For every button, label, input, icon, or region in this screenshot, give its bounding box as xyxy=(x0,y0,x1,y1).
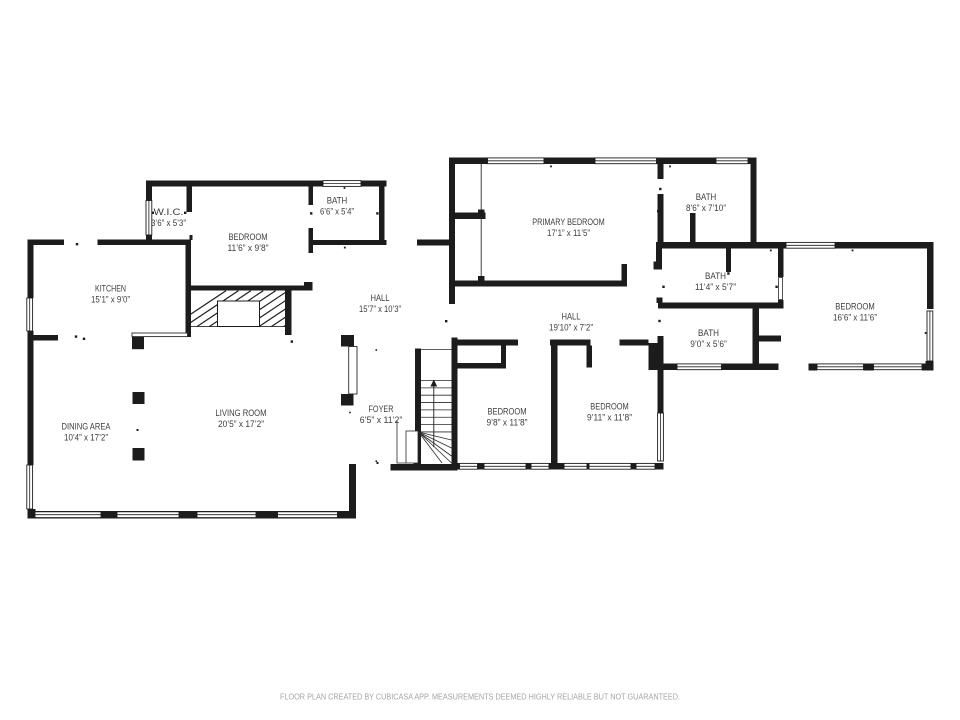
svg-text:BATH: BATH xyxy=(698,328,719,339)
svg-text:16’6” x 11’6”: 16’6” x 11’6” xyxy=(833,313,877,324)
svg-text:BEDROOM: BEDROOM xyxy=(488,407,527,418)
svg-text:6’5” x 11’2”: 6’5” x 11’2” xyxy=(360,415,403,426)
svg-text:15’7” x 10’3”: 15’7” x 10’3” xyxy=(359,304,401,315)
svg-text:LIVING ROOM: LIVING ROOM xyxy=(216,408,267,419)
svg-text:15’1” x 9’0”: 15’1” x 9’0” xyxy=(91,295,130,306)
svg-text:BEDROOM: BEDROOM xyxy=(229,232,268,243)
svg-text:10’4” x 17’2”: 10’4” x 17’2” xyxy=(64,433,108,444)
svg-text:KITCHEN: KITCHEN xyxy=(95,284,126,295)
svg-text:17’1” x 11’5”: 17’1” x 11’5” xyxy=(547,228,590,239)
svg-text:PRIMARY BEDROOM: PRIMARY BEDROOM xyxy=(532,217,605,228)
svg-text:19’10” x 7’2”: 19’10” x 7’2” xyxy=(549,323,593,334)
svg-text:11’4” x 5’7”: 11’4” x 5’7” xyxy=(695,282,736,293)
svg-text:20’5” x 17’2”: 20’5” x 17’2” xyxy=(218,419,264,430)
svg-text:BEDROOM: BEDROOM xyxy=(590,402,629,413)
svg-text:6’6” x 5’4”: 6’6” x 5’4” xyxy=(320,207,354,218)
svg-text:FLOOR PLAN CREATED BY CUBICASA: FLOOR PLAN CREATED BY CUBICASA APP. MEAS… xyxy=(280,693,680,702)
svg-text:3’6” x 5’3”: 3’6” x 5’3” xyxy=(151,218,186,229)
svg-text:HALL: HALL xyxy=(562,312,582,323)
svg-text:HALL: HALL xyxy=(371,293,391,304)
svg-text:8’6” x 7’10”: 8’6” x 7’10” xyxy=(686,203,726,214)
svg-text:9’11” x 11’8”: 9’11” x 11’8” xyxy=(587,413,632,424)
svg-text:W.I.C.: W.I.C. xyxy=(154,207,184,218)
svg-text:BEDROOM: BEDROOM xyxy=(835,302,875,313)
svg-text:BATH: BATH xyxy=(705,271,726,282)
svg-text:11’6” x 9’8”: 11’6” x 9’8” xyxy=(228,243,269,254)
svg-text:9’0” x 5’6”: 9’0” x 5’6” xyxy=(690,339,727,350)
svg-text:BATH: BATH xyxy=(327,196,348,207)
svg-text:9’8” x 11’8”: 9’8” x 11’8” xyxy=(487,418,528,429)
svg-text:FOYER: FOYER xyxy=(369,404,394,415)
svg-text:DINING AREA: DINING AREA xyxy=(62,422,111,433)
svg-text:BATH: BATH xyxy=(696,192,717,203)
